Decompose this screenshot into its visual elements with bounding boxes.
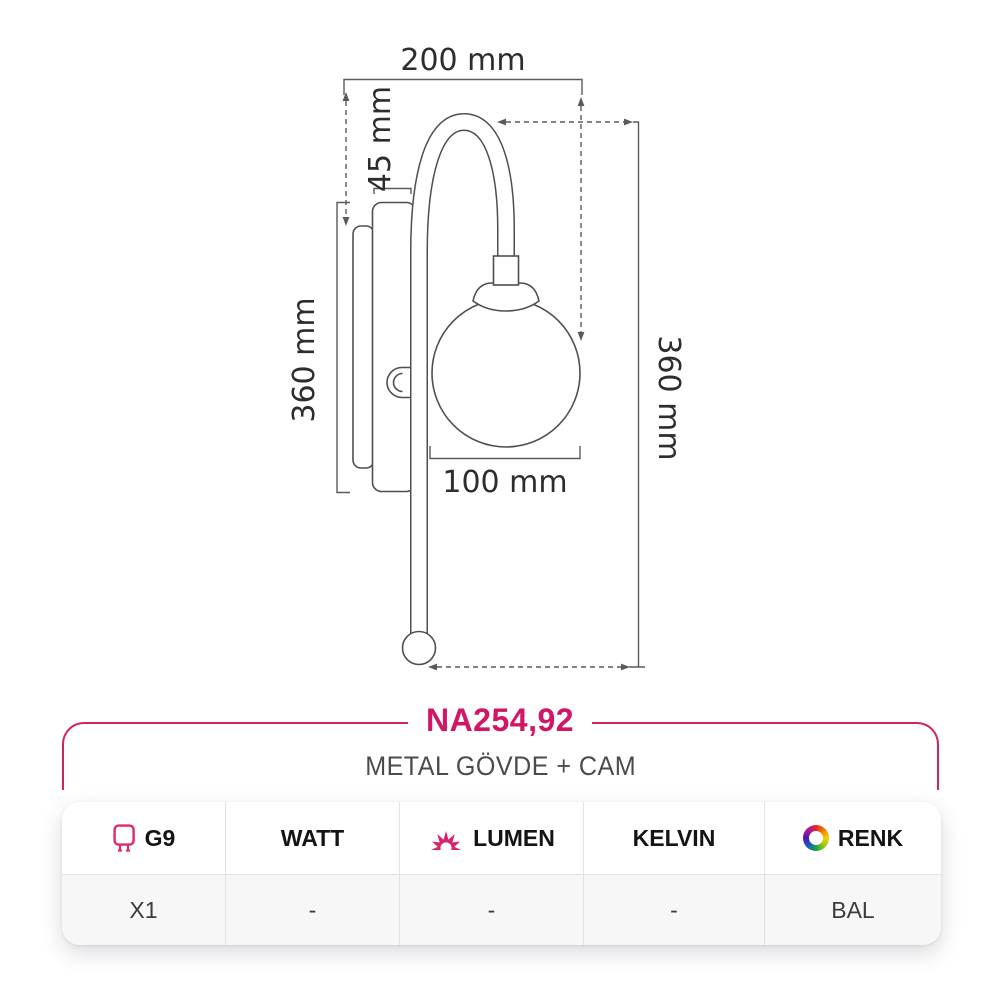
header-cell-watt: WATT — [226, 802, 400, 875]
dim-bracket-glass — [430, 446, 580, 459]
header-label-lumen: LUMEN — [473, 825, 555, 852]
material-text: METAL GÖVDE + CAM — [365, 751, 636, 790]
lamp-outline — [353, 203, 416, 492]
dim-label-total-height: 360 mm — [651, 335, 686, 460]
g9-bulb-icon — [112, 823, 136, 853]
color-wheel-icon — [803, 825, 829, 851]
pivot-knob — [387, 368, 411, 398]
product-spec-page: 200 mm 45 mm 360 mm 100 mm 360 mm NA254,… — [0, 0, 1000, 1000]
dim-bracket-body-height — [337, 203, 350, 493]
header-label-renk: RENK — [838, 825, 903, 852]
technical-drawing: 200 mm 45 mm 360 mm 100 mm 360 mm — [0, 0, 1000, 700]
product-code-title: NA254,92 — [0, 702, 1000, 739]
value-renk: BAL — [831, 897, 874, 924]
header-label-watt: WATT — [281, 825, 344, 852]
spec-table: G9 WATT LUMEN KELVIN — [62, 802, 941, 945]
socket-stem — [494, 256, 519, 285]
value-kelvin: - — [670, 897, 678, 924]
rod-end-ball — [403, 632, 436, 665]
value-cell-lumen: - — [400, 875, 584, 945]
socket-flare — [473, 283, 539, 311]
header-cell-kelvin: KELVIN — [584, 802, 765, 875]
header-label-kelvin: KELVIN — [633, 825, 716, 852]
dim-label-glass-diameter: 100 mm — [442, 465, 567, 500]
dim-bracket-total-height — [629, 122, 645, 667]
sun-rays-icon — [428, 826, 464, 850]
wall-frontplate — [373, 203, 416, 492]
value-watt: - — [309, 897, 317, 924]
product-code-text: NA254,92 — [408, 702, 592, 739]
value-cell-kelvin: - — [584, 875, 765, 945]
header-label-socket: G9 — [145, 825, 176, 852]
header-cell-renk: RENK — [765, 802, 941, 875]
value-socket: X1 — [129, 897, 157, 924]
value-lumen: - — [488, 897, 496, 924]
header-cell-socket: G9 — [62, 802, 226, 875]
glass-globe — [432, 299, 580, 447]
value-cell-renk: BAL — [765, 875, 941, 945]
dim-label-body-height: 360 mm — [287, 297, 322, 422]
value-cell-watt: - — [226, 875, 400, 945]
value-cell-socket: X1 — [62, 875, 226, 945]
dim-label-width: 200 mm — [400, 43, 525, 78]
header-cell-lumen: LUMEN — [400, 802, 584, 875]
wall-backplate — [353, 226, 374, 468]
dim-label-plate-depth: 45 mm — [363, 86, 398, 192]
